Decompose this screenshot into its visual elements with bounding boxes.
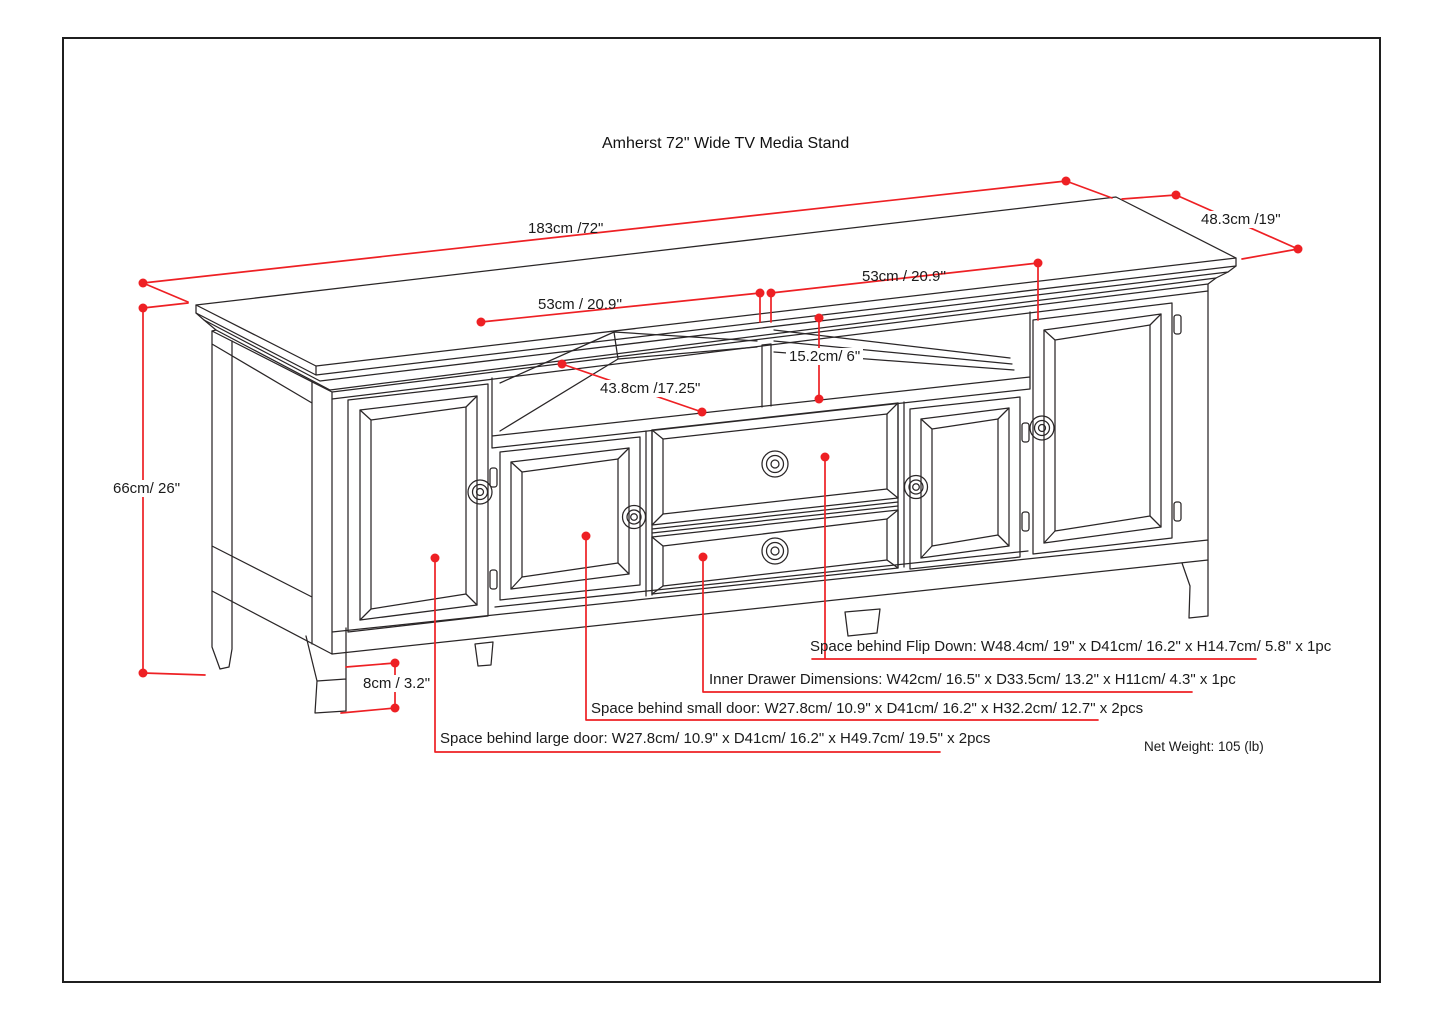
right-door-panel (1055, 325, 1150, 531)
dim-line-top-width (143, 181, 1112, 302)
shelf-divider (762, 344, 771, 407)
dim-label-leg-height: 8cm / 3.2" (360, 675, 433, 692)
note-net-weight: Net Weight: 105 (lb) (1144, 739, 1264, 754)
left-door-bevel-corners (360, 396, 477, 620)
drawer-bank-frame (646, 402, 904, 596)
furniture-linework (196, 197, 1236, 713)
molding-step-2 (204, 272, 1228, 390)
page-title: Amherst 72" Wide TV Media Stand (602, 135, 849, 153)
center-foot-left (475, 642, 493, 666)
hinge-icon (490, 468, 497, 487)
dim-label-shelf-left-width: 53cm / 20.9'' (538, 296, 622, 313)
left-door-panel (371, 407, 466, 609)
hinge-icon (490, 570, 497, 589)
top-board-edge (196, 258, 1236, 375)
hinge-icon (1174, 315, 1181, 334)
upper-drawer-bevel (663, 414, 887, 514)
small-left-door-corners (511, 448, 629, 589)
dimension-lines (143, 181, 1298, 752)
front-face (332, 284, 1208, 654)
note-flip-down: Space behind Flip Down: W48.4cm/ 19" x D… (810, 638, 1331, 655)
note-inner-drawer: Inner Drawer Dimensions: W42cm/ 16.5" x … (709, 671, 1236, 688)
upper-drawer-outer (652, 403, 898, 525)
dim-label-top-depth: 48.3cm /19" (1198, 211, 1284, 228)
front-right-leg (1182, 560, 1208, 618)
small-left-door-bevel (511, 448, 629, 589)
center-bottom-rail (495, 551, 1028, 607)
note-small-door: Space behind small door: W27.8cm/ 10.9" … (591, 700, 1143, 717)
dim-label-overall-height: 66cm/ 26" (110, 480, 183, 497)
drawer-gap (652, 502, 898, 533)
dim-label-shelf-depth: 43.8cm /17.25" (597, 380, 703, 397)
hinge-icon (1174, 502, 1181, 521)
small-right-door-knob-icon (905, 476, 928, 499)
small-left-door-knob-icon (623, 506, 646, 529)
back-left-leg (212, 591, 232, 669)
note-large-door: Space behind large door: W27.8cm/ 10.9" … (440, 730, 990, 747)
molding-step-1 (196, 266, 1236, 381)
diagram-page: Amherst 72" Wide TV Media Stand 183cm /7… (0, 0, 1445, 1022)
lower-drawer-bevel (663, 519, 887, 586)
upper-drawer-corners (652, 403, 898, 525)
dim-label-shelf-right-width: 53cm / 20.9'' (862, 268, 946, 285)
small-right-door-panel (932, 419, 998, 546)
dim-label-top-width: 183cm /72" (528, 220, 603, 237)
left-door-bevel (360, 396, 477, 620)
small-left-door-panel (522, 459, 618, 577)
dimension-endpoint-dots (139, 177, 1303, 713)
right-door-bevel (1044, 314, 1161, 543)
hinge-icon (1022, 512, 1029, 531)
tv-stand-line-drawing (0, 0, 1445, 1022)
hinge-icon (1022, 423, 1029, 442)
center-foot-right (845, 609, 880, 636)
right-door-corners (1044, 314, 1161, 543)
left-side-panel (212, 331, 332, 654)
dim-label-shelf-opening-height: 15.2cm/ 6" (786, 348, 863, 365)
